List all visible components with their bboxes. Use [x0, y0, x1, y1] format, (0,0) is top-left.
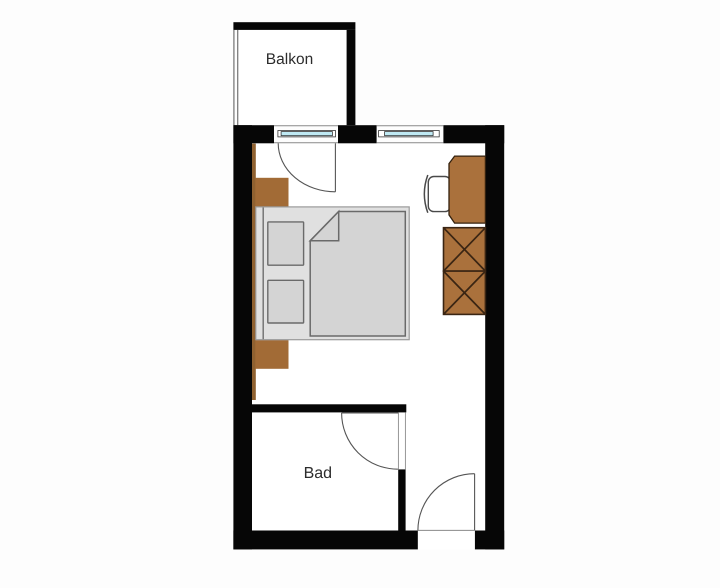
- svg-text:Balkon: Balkon: [266, 51, 313, 68]
- svg-text:Bad: Bad: [304, 465, 332, 482]
